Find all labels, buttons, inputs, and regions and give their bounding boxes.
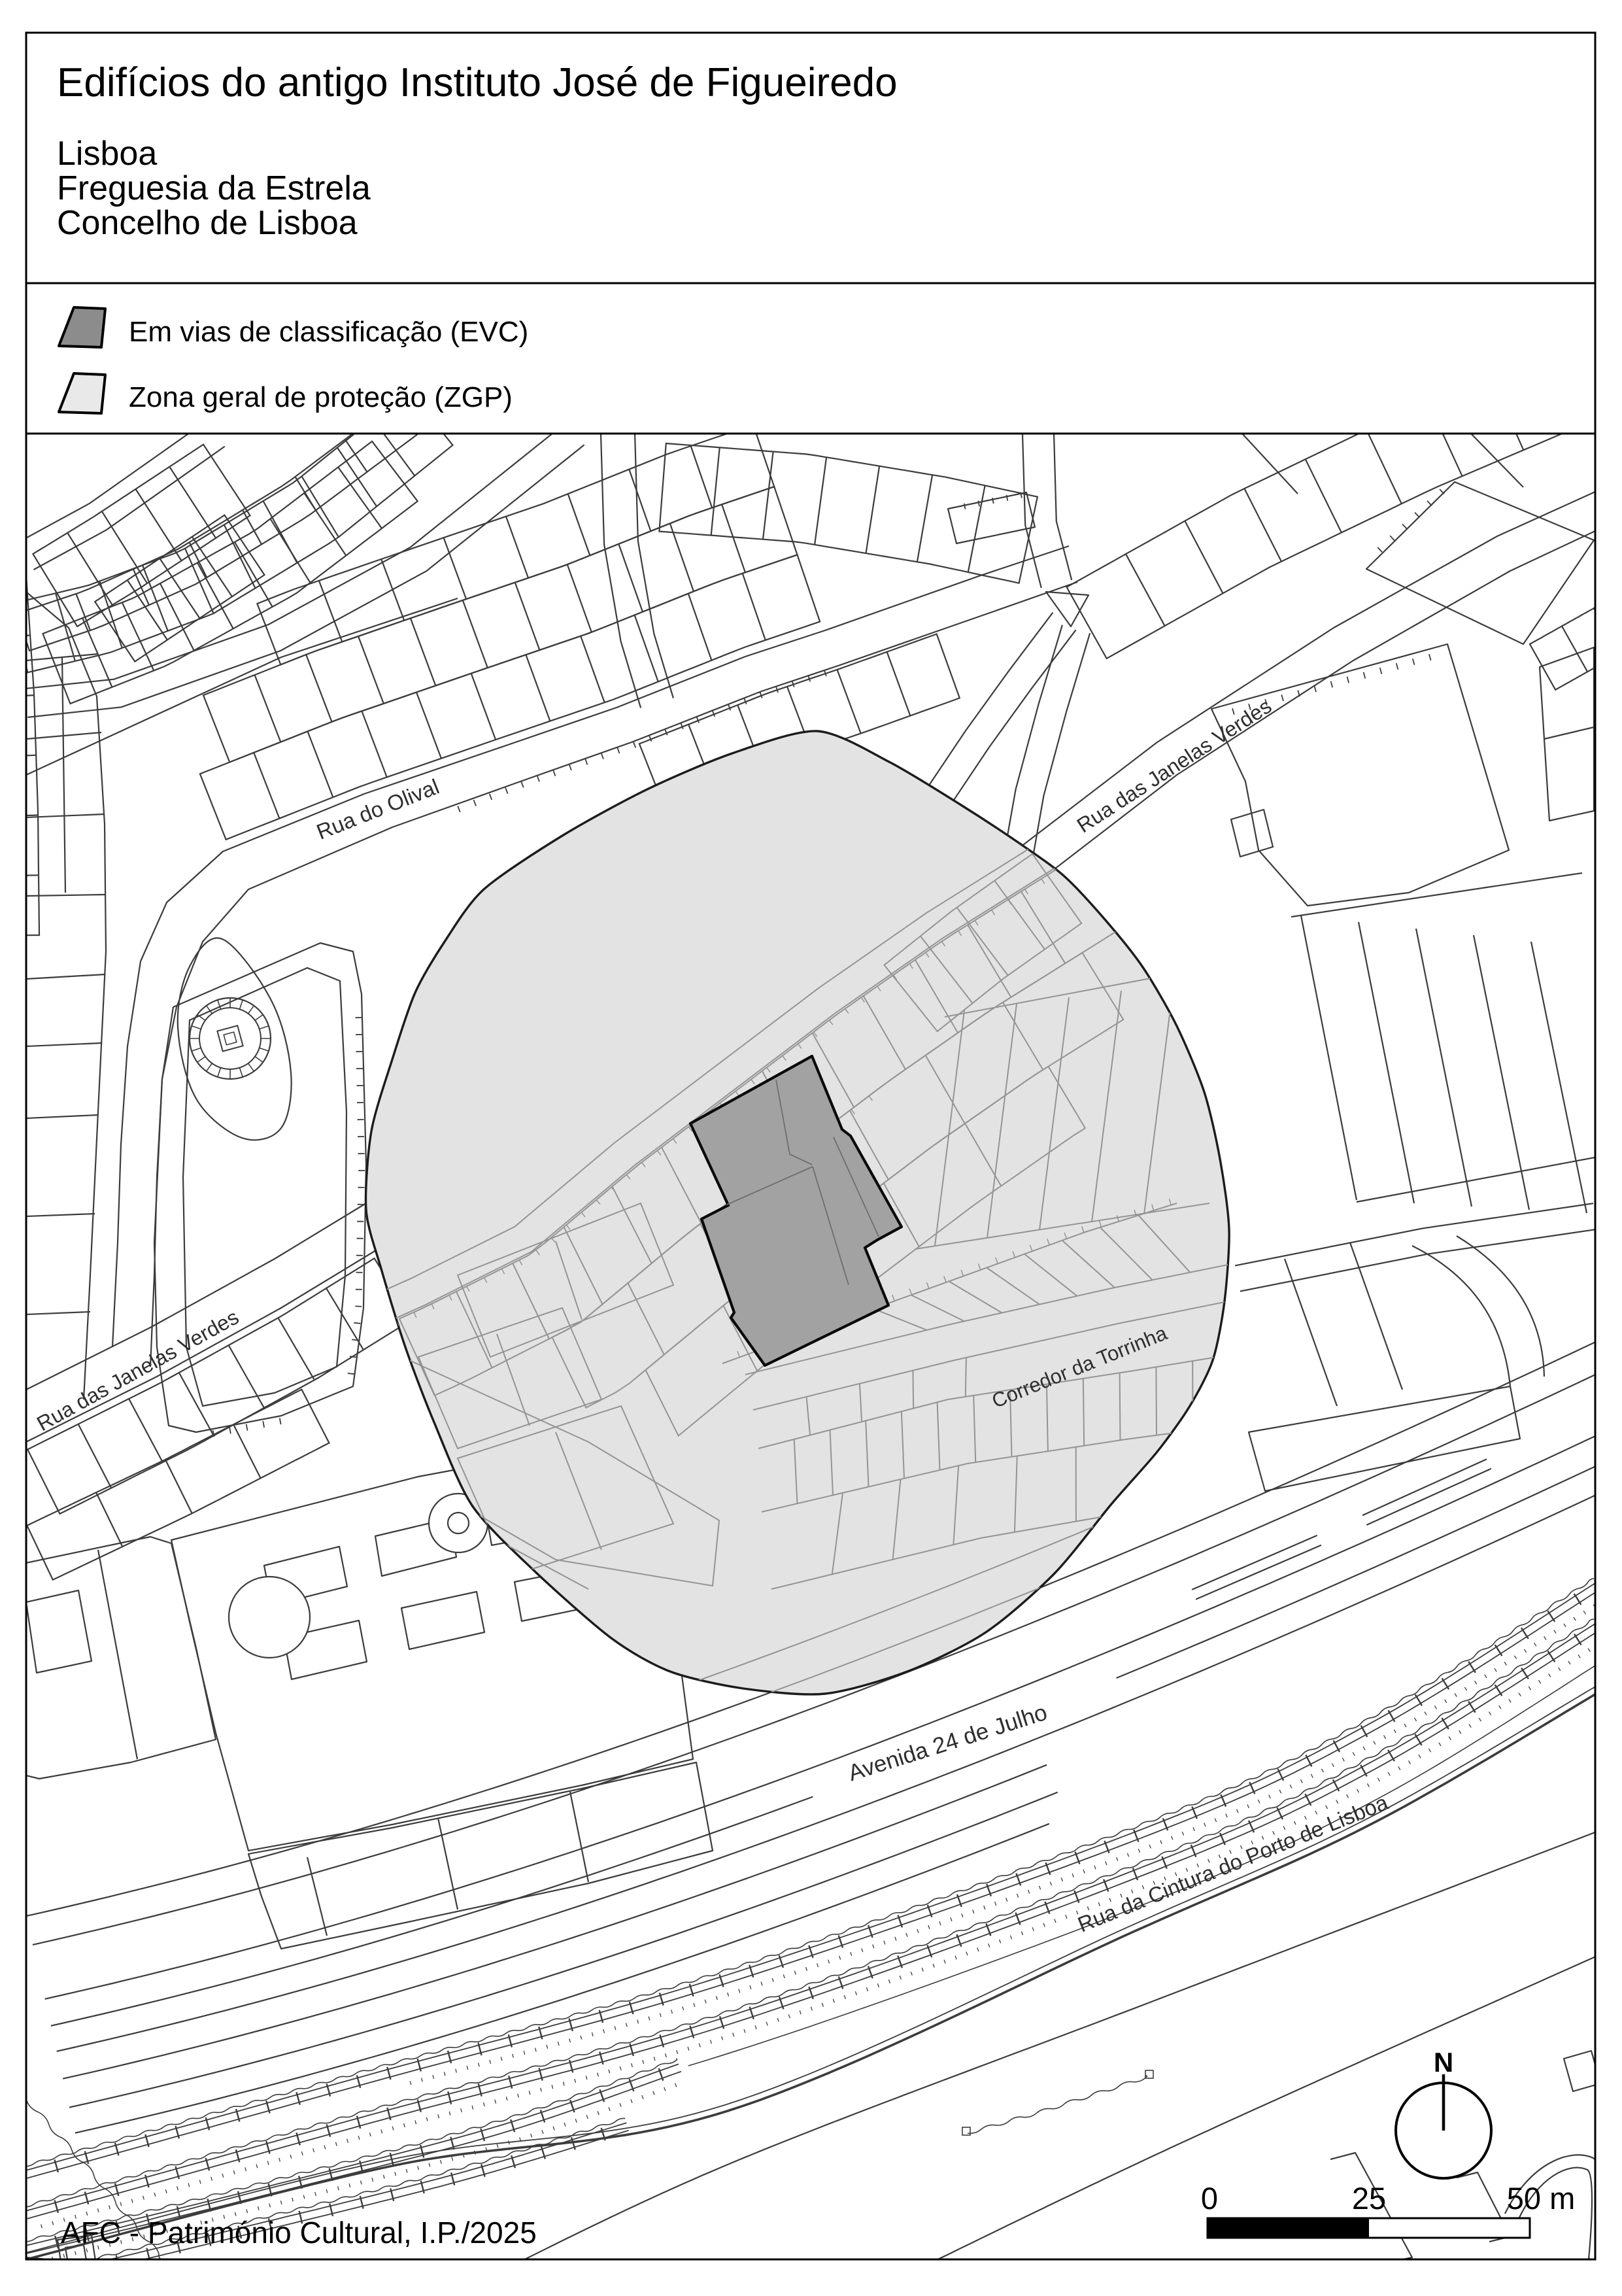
- svg-text:25: 25: [1352, 2181, 1386, 2216]
- svg-text:Freguesia da Estrela: Freguesia da Estrela: [57, 169, 371, 207]
- svg-text:Lisboa: Lisboa: [57, 135, 157, 173]
- svg-text:0: 0: [1201, 2181, 1218, 2216]
- svg-text:Em vias de classificação (EVC): Em vias de classificação (EVC): [129, 316, 528, 348]
- svg-text:AFC - Património Cultural, I.P: AFC - Património Cultural, I.P./2025: [61, 2216, 537, 2250]
- svg-text:50 m: 50 m: [1507, 2181, 1576, 2216]
- svg-text:Edifícios do antigo Instituto: Edifícios do antigo Instituto José de Fi…: [57, 60, 898, 105]
- svg-text:Zona geral de proteção (ZGP): Zona geral de proteção (ZGP): [129, 381, 513, 413]
- svg-text:N: N: [1434, 2047, 1453, 2078]
- svg-text:Concelho de Lisboa: Concelho de Lisboa: [57, 204, 358, 242]
